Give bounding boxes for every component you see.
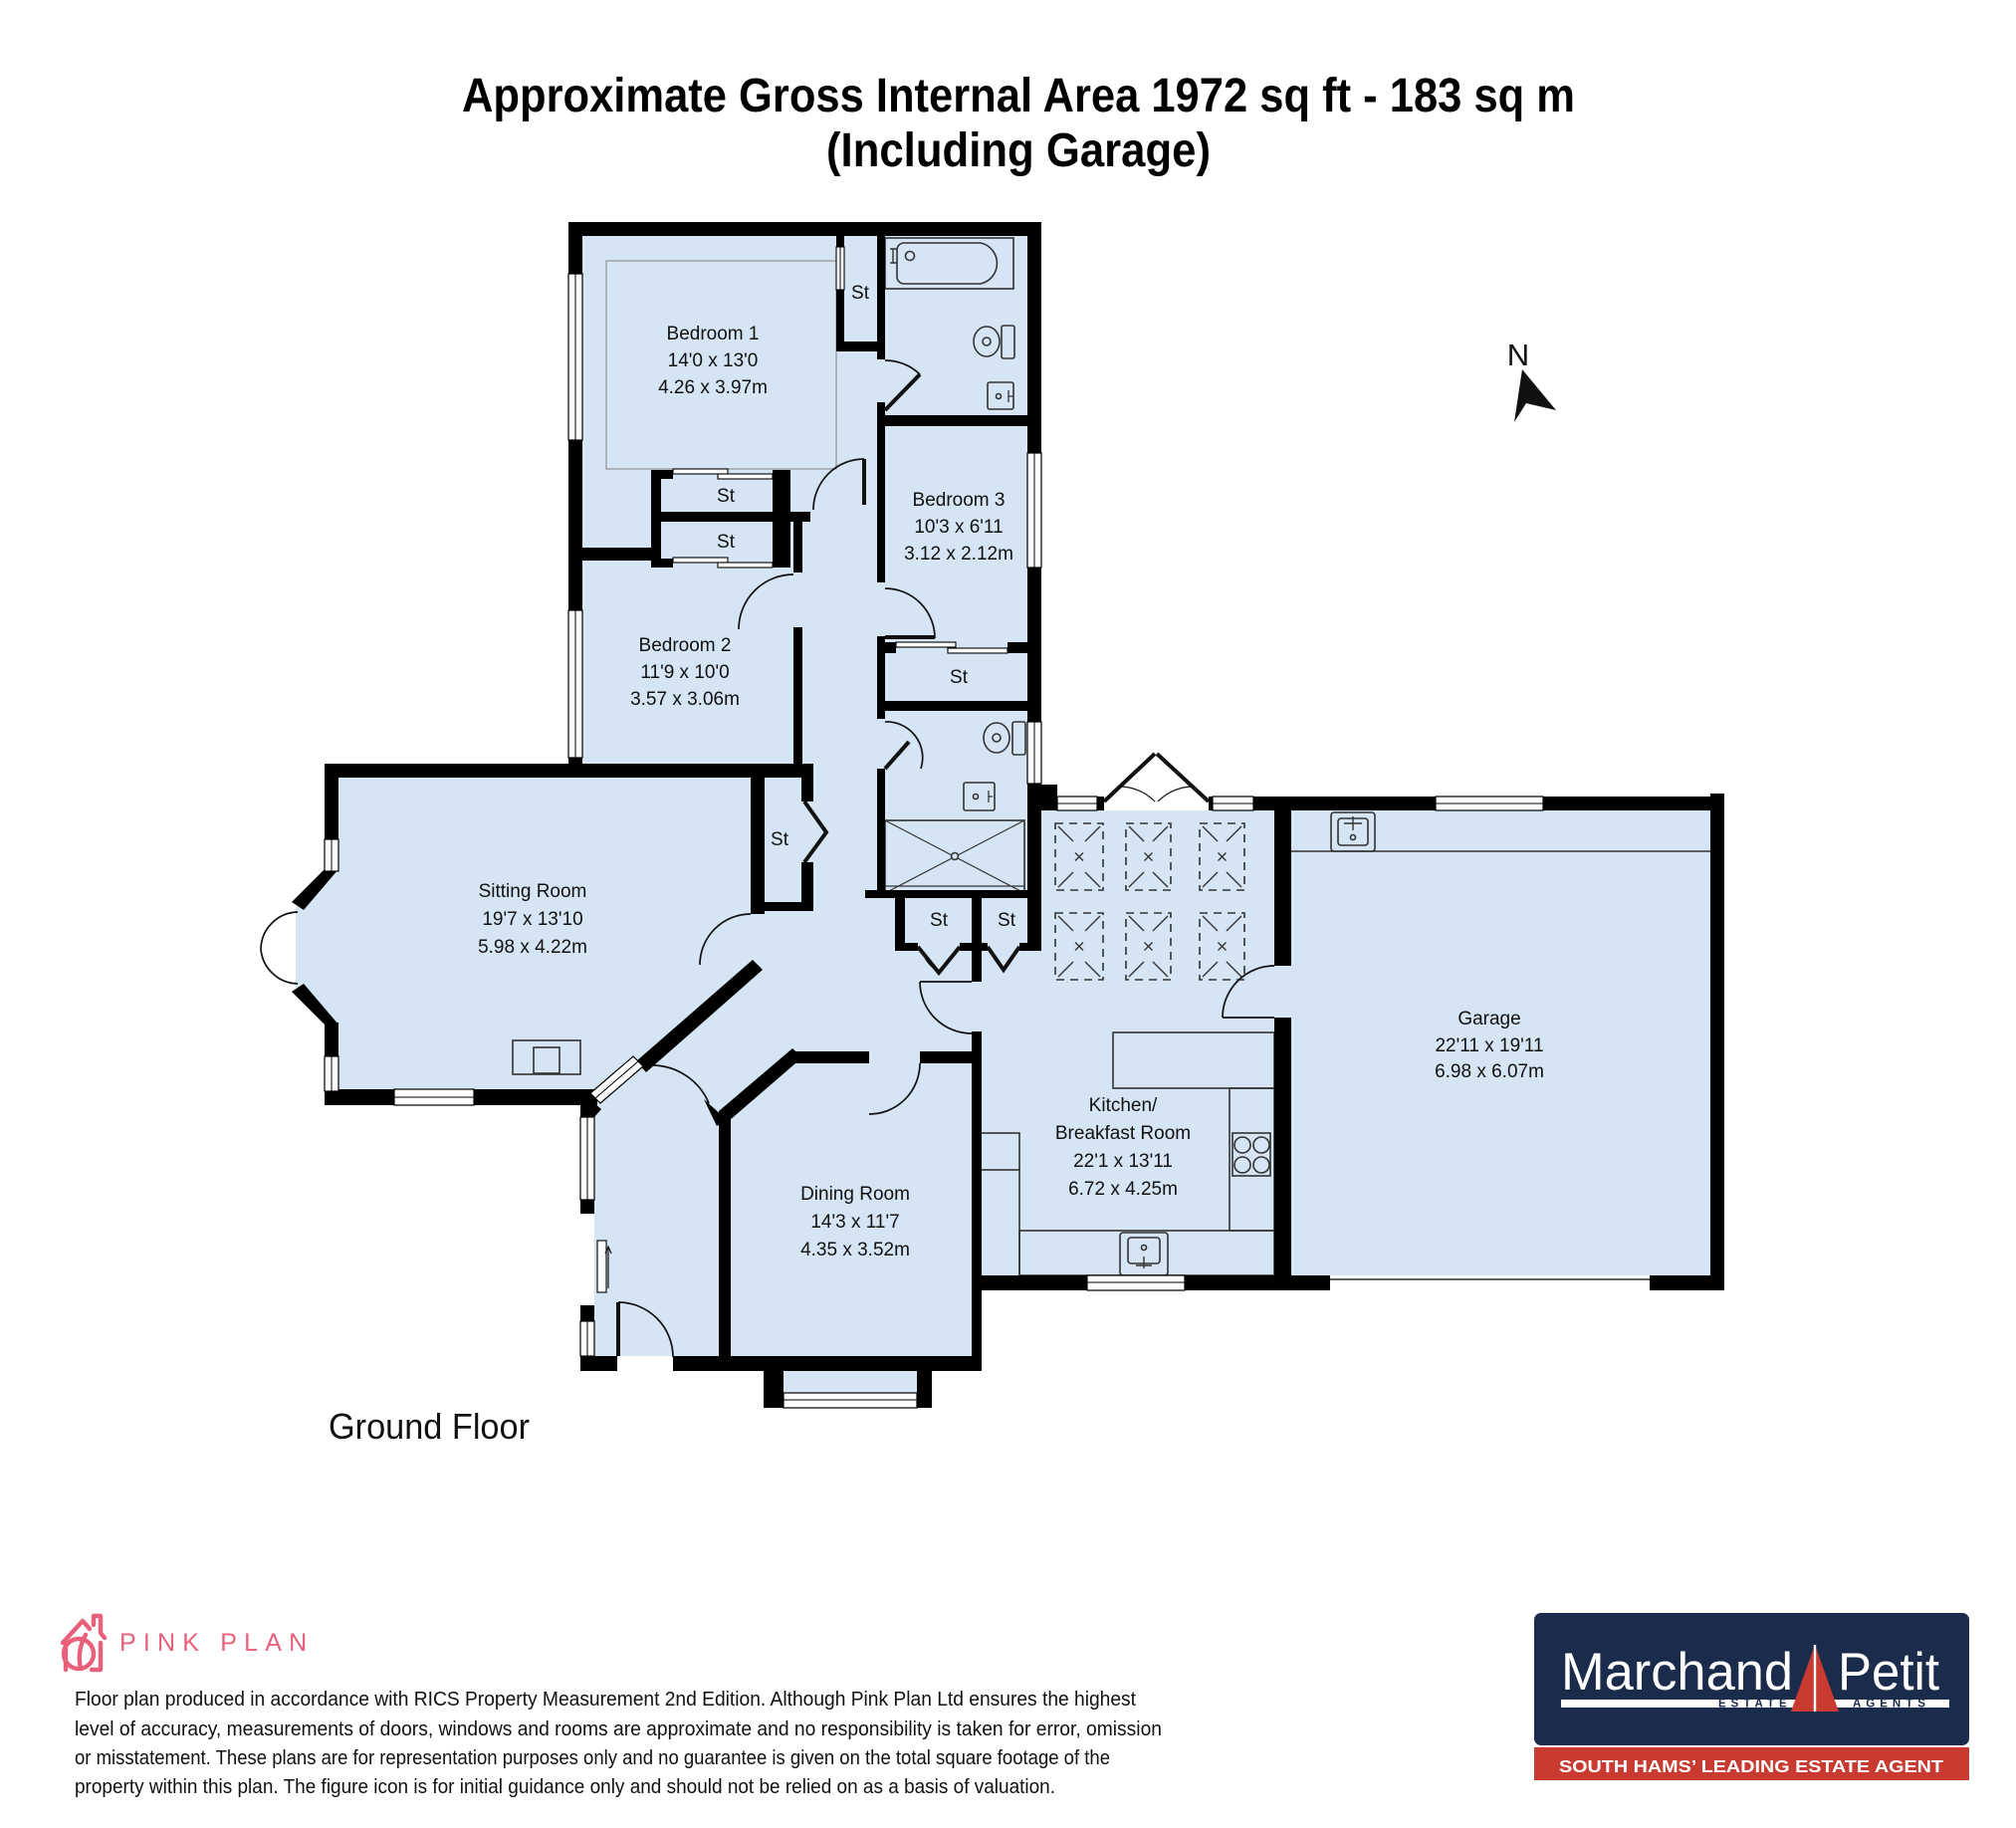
svg-text:22'11 x 19'11: 22'11 x 19'11 — [1435, 1035, 1543, 1056]
svg-text:property within this plan. The: property within this plan. The figure ic… — [75, 1775, 1055, 1798]
svg-text:14'3 x 11'7: 14'3 x 11'7 — [810, 1212, 899, 1233]
svg-text:4.26 x 3.97m: 4.26 x 3.97m — [658, 377, 768, 398]
svg-text:St: St — [930, 910, 949, 931]
svg-text:Approximate Gross Internal Are: Approximate Gross Internal Area 1972 sq … — [462, 70, 1575, 122]
svg-text:PINK PLAN: PINK PLAN — [119, 1629, 314, 1657]
svg-text:N: N — [1507, 338, 1529, 372]
svg-text:3.57 x 3.06m: 3.57 x 3.06m — [630, 689, 740, 710]
svg-text:Sitting Room: Sitting Room — [479, 881, 587, 902]
svg-text:St: St — [771, 829, 789, 850]
svg-text:22'1 x 13'11: 22'1 x 13'11 — [1073, 1151, 1173, 1172]
svg-text:Garage: Garage — [1457, 1009, 1520, 1029]
svg-text:Floor plan produced in accorda: Floor plan produced in accordance with R… — [75, 1688, 1136, 1711]
svg-text:11'9 x 10'0: 11'9 x 10'0 — [640, 662, 729, 683]
svg-text:St: St — [950, 667, 969, 688]
svg-text:St: St — [851, 283, 870, 304]
svg-text:St: St — [717, 486, 736, 507]
svg-text:Breakfast Room: Breakfast Room — [1055, 1123, 1191, 1144]
svg-text:or misstatement. These plans a: or misstatement. These plans are for rep… — [75, 1746, 1110, 1769]
svg-text:level of accuracy, measurement: level of accuracy, measurements of doors… — [75, 1717, 1162, 1740]
svg-text:Bedroom 3: Bedroom 3 — [913, 490, 1006, 511]
svg-text:5.98 x 4.22m: 5.98 x 4.22m — [478, 937, 587, 958]
svg-text:St: St — [717, 532, 736, 553]
svg-text:SOUTH HAMS’ LEADING ESTATE AGE: SOUTH HAMS’ LEADING ESTATE AGENT — [1559, 1756, 1943, 1776]
svg-text:6.72 x 4.25m: 6.72 x 4.25m — [1068, 1179, 1178, 1200]
svg-text:10'3 x 6'11: 10'3 x 6'11 — [914, 517, 1003, 538]
svg-text:(Including Garage): (Including Garage) — [826, 124, 1211, 177]
svg-text:Bedroom 1: Bedroom 1 — [667, 324, 760, 344]
svg-text:19'7 x 13'10: 19'7 x 13'10 — [482, 909, 582, 930]
svg-text:Petit: Petit — [1838, 1643, 1939, 1702]
svg-text:St: St — [998, 910, 1016, 931]
svg-text:4.35 x 3.52m: 4.35 x 3.52m — [800, 1240, 910, 1260]
svg-text:Bedroom 2: Bedroom 2 — [639, 635, 732, 656]
svg-text:ESTATE: ESTATE — [1718, 1699, 1792, 1711]
svg-text:AGENTS: AGENTS — [1853, 1699, 1930, 1711]
svg-text:Marchand: Marchand — [1561, 1643, 1793, 1702]
svg-text:Dining Room: Dining Room — [800, 1184, 910, 1205]
svg-text:14'0 x 13'0: 14'0 x 13'0 — [668, 350, 759, 371]
svg-text:3.12 x 2.12m: 3.12 x 2.12m — [904, 544, 1013, 565]
svg-text:6.98 x 6.07m: 6.98 x 6.07m — [1435, 1061, 1544, 1082]
svg-text:Kitchen/: Kitchen/ — [1089, 1095, 1158, 1116]
svg-text:Ground Floor: Ground Floor — [329, 1406, 530, 1447]
